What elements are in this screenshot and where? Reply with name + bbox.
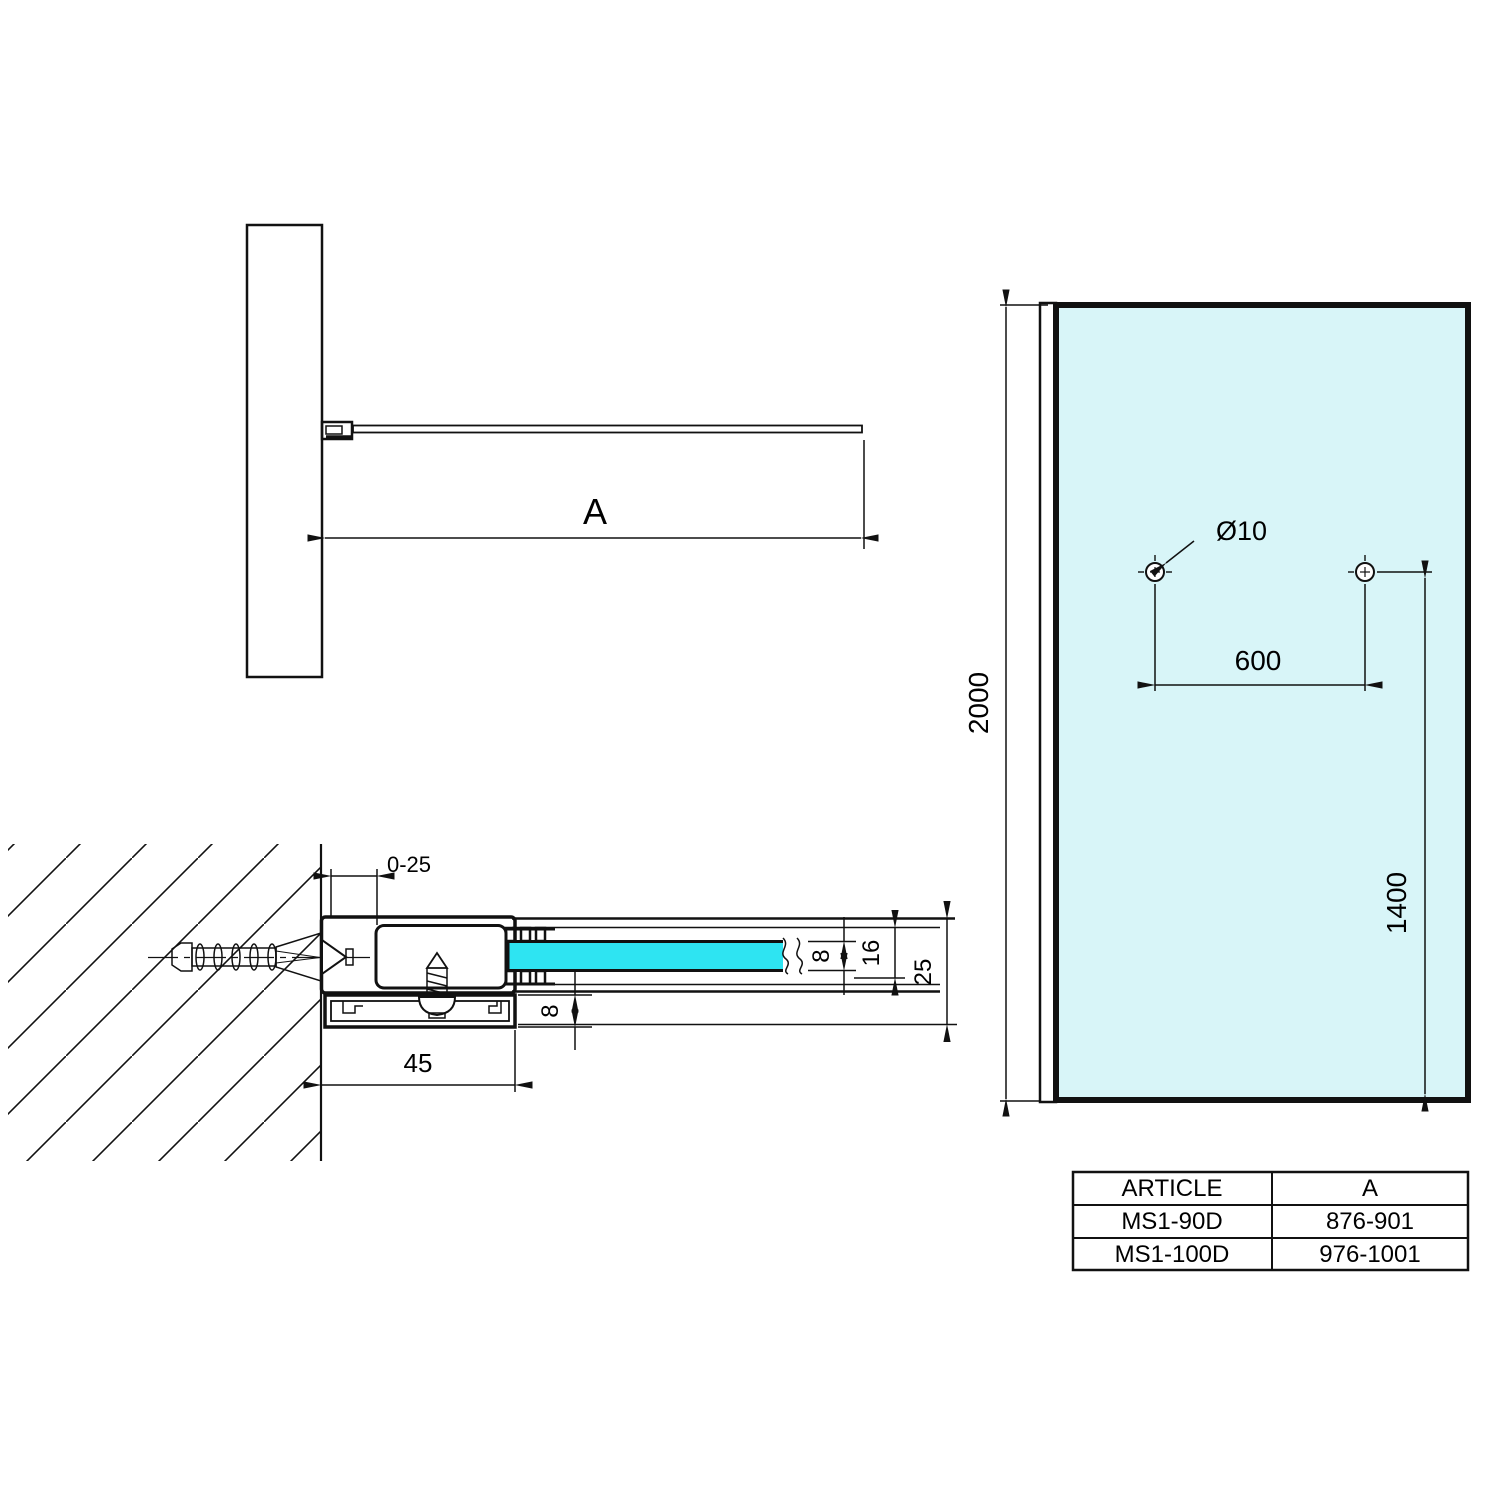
dimension-profile-width: 45	[321, 1030, 515, 1092]
table-header-article: ARTICLE	[1122, 1175, 1223, 1202]
countersunk-screw-head	[322, 940, 346, 974]
dimension-adjust-range: 0-25	[331, 852, 431, 925]
article-table: ARTICLE A MS1-90D 876-901 MS1-100D 976-1…	[1073, 1172, 1468, 1270]
wall-section-hatch	[8, 844, 321, 1161]
dim-glass-8-label: 8	[808, 949, 835, 962]
dim-a-label: A	[583, 491, 607, 532]
technical-drawing-page: A	[0, 0, 1500, 1500]
table-header-a: A	[1362, 1175, 1378, 1202]
dim-45-label: 45	[404, 1048, 433, 1078]
top-view: A	[247, 225, 864, 677]
glass-panel-front	[1056, 305, 1468, 1100]
dim-diameter-label: Ø10	[1216, 516, 1267, 546]
table-cell-a-1: 876-901	[1326, 1208, 1414, 1235]
dim-adjust-label: 0-25	[387, 852, 431, 877]
glass-plan	[353, 426, 862, 433]
dim-600-label: 600	[1235, 645, 1282, 676]
dimension-glass-thickness: 8	[808, 917, 856, 995]
wall-bracket	[322, 422, 352, 439]
dim-rail-8-label: 8	[537, 1004, 564, 1017]
shower-screen-drawing: A	[0, 0, 1500, 1500]
dimension-panel-height: 2000	[963, 305, 1048, 1101]
dim-25-label: 25	[910, 959, 937, 986]
table-cell-article-2: MS1-100D	[1115, 1241, 1230, 1268]
dim-16-label: 16	[858, 940, 885, 967]
table-cell-a-2: 976-1001	[1319, 1241, 1420, 1268]
table-cell-article-1: MS1-90D	[1121, 1208, 1222, 1235]
dimension-a: A	[325, 440, 864, 549]
wall-profile-section	[322, 917, 516, 993]
dimension-channel-height: 16	[854, 928, 905, 979]
dim-1400-label: 1400	[1381, 872, 1412, 934]
glass-pane-section	[508, 942, 785, 971]
glass-section	[508, 936, 808, 976]
front-view: Ø10 2000 600 1400	[963, 303, 1468, 1102]
wall-plan	[247, 225, 322, 677]
dim-2000-label: 2000	[963, 672, 994, 734]
section-detail-view: 0-25 45 8 8 16	[8, 844, 957, 1161]
